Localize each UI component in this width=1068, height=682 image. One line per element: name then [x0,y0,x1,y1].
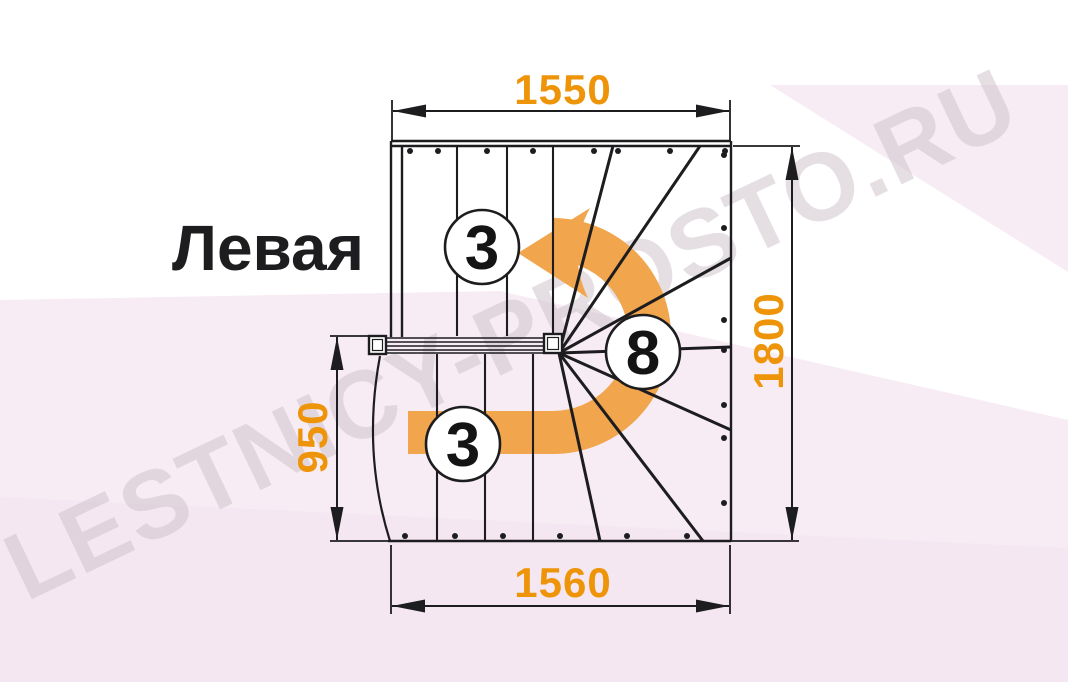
dim-top-label: 1550 [514,66,611,114]
stair-plan-canvas: LESTNICY-PROSTO.RU Левая 1550 1560 1800 … [0,0,1068,682]
dim-bottom-label: 1560 [514,559,611,607]
orientation-label: Левая [172,211,364,285]
step-count-top-flight: 3 [445,212,519,286]
dim-right-label: 1800 [745,292,793,389]
step-count-bottom-flight: 3 [426,409,500,483]
dim-left-label: 950 [289,400,337,473]
step-count-winder: 8 [606,317,680,391]
